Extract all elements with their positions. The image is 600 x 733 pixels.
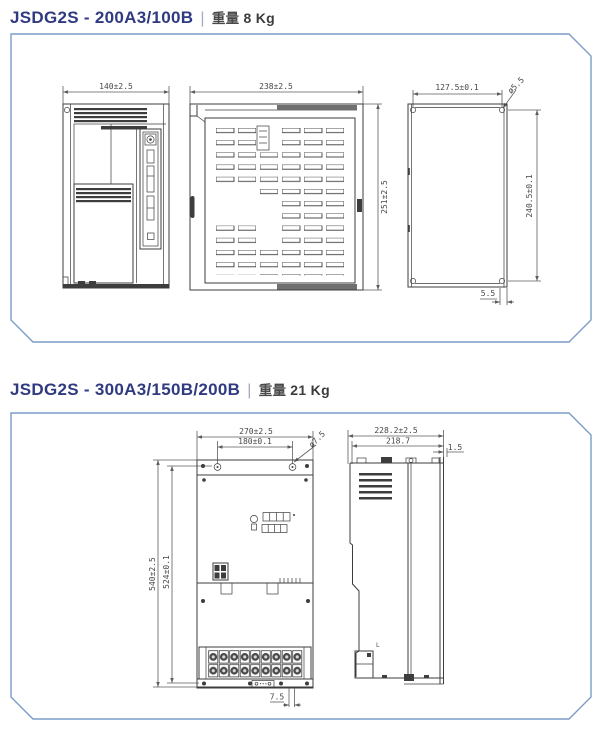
s1-back-width-dim: 127.5±0.1 xyxy=(435,83,479,92)
section1-weight-label: 重量 xyxy=(212,11,240,26)
section2-title-separator: | xyxy=(247,382,251,399)
s1-front-view-drawing: 140±2.5 xyxy=(63,82,169,288)
s2-side-mark-label: L xyxy=(376,642,380,649)
s1-back-offset-dim: 5.5 xyxy=(481,289,496,298)
s2-side-flange-dim: 1.5 xyxy=(448,443,463,452)
section1-title: JSDG2S - 200A3/100B|重量8 Kg xyxy=(10,7,275,28)
section2-weight-value: 21 Kg xyxy=(290,382,330,398)
s2-front-bottom-offset-dim: 7.5 xyxy=(270,693,285,702)
s2-front-hole-span-dim: 180±0.1 xyxy=(238,437,272,446)
s2-front-view-drawing: 270±2.5 180±0.1 ø7.5 540±2.5 524±0.1 xyxy=(148,427,327,707)
s1-side-height-dim: 251±2.5 xyxy=(380,180,389,214)
s1-side-view-drawing: 238±2.5 251±2.5 xyxy=(190,82,389,290)
section2-title: JSDG2S - 300A3/150B/200B|重量21 Kg xyxy=(10,379,330,400)
section1-title-separator: | xyxy=(200,10,204,27)
s1-front-width-dim: 140±2.5 xyxy=(99,82,133,91)
s1-side-width-dim: 238±2.5 xyxy=(259,82,293,91)
s1-back-hole-dim: ø5.5 xyxy=(506,75,526,95)
section1-weight-value: 8 Kg xyxy=(243,10,275,26)
s2-side-inner-width-dim: 218.7 xyxy=(386,437,410,446)
section1-model-name: JSDG2S - 200A3/100B xyxy=(10,8,193,27)
s2-front-width-dim: 270±2.5 xyxy=(239,427,273,436)
s2-front-height-dim: 540±2.5 xyxy=(148,557,157,591)
technical-drawings-canvas: 140±2.5 xyxy=(0,0,600,733)
s2-front-inner-height-dim: 524±0.1 xyxy=(162,555,171,589)
s1-back-height-dim: 240.5±0.1 xyxy=(525,174,534,218)
s2-side-width-dim: 228.2±2.5 xyxy=(374,426,418,435)
s2-side-view-drawing: 228.2±2.5 218.7 1.5 L xyxy=(348,426,464,684)
s2-front-hole-dim: ø7.5 xyxy=(307,429,327,449)
section2-weight-label: 重量 xyxy=(259,383,287,398)
s1-back-view-drawing: 127.5±0.1 ø5.5 240.5±0.1 5.5 xyxy=(408,75,541,305)
section2-model-name: JSDG2S - 300A3/150B/200B xyxy=(10,380,240,399)
